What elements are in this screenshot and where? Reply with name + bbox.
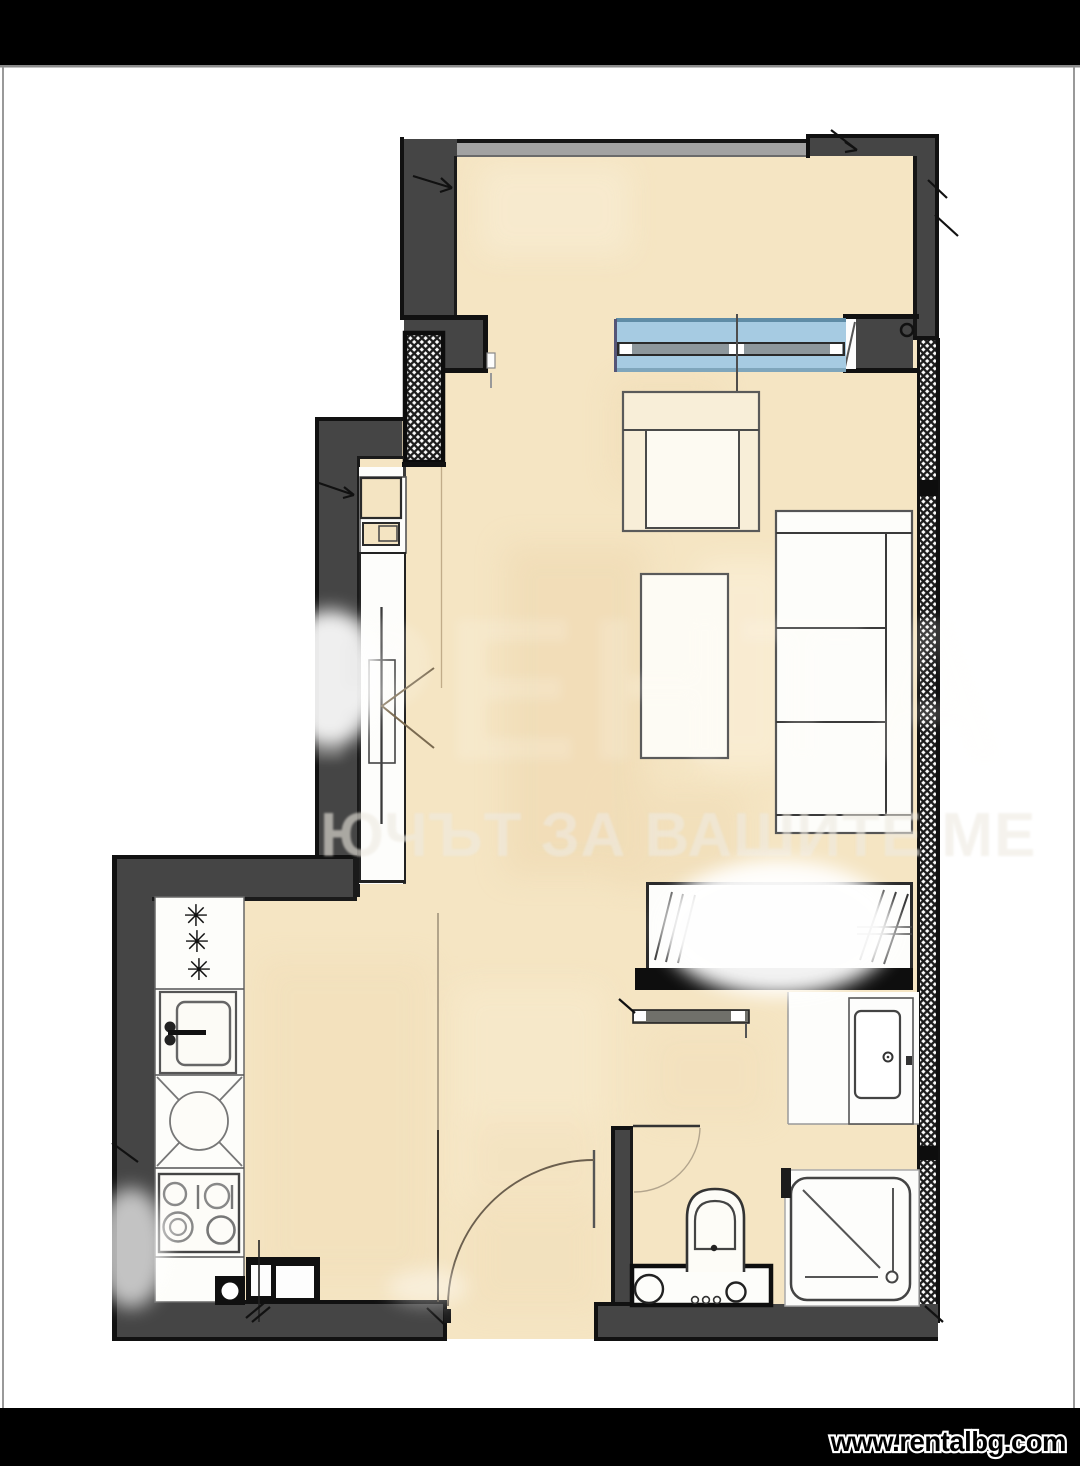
svg-text:ЮЧЪТ ЗА ВАШИТЕ МЕ: ЮЧЪТ ЗА ВАШИТЕ МЕ <box>320 801 1036 870</box>
svg-text:РЕНТА: РЕНТА <box>300 575 1012 804</box>
svg-text:✳: ✳ <box>186 954 211 987</box>
svg-text:www.rentalbg.com: www.rentalbg.com <box>830 1426 1066 1457</box>
